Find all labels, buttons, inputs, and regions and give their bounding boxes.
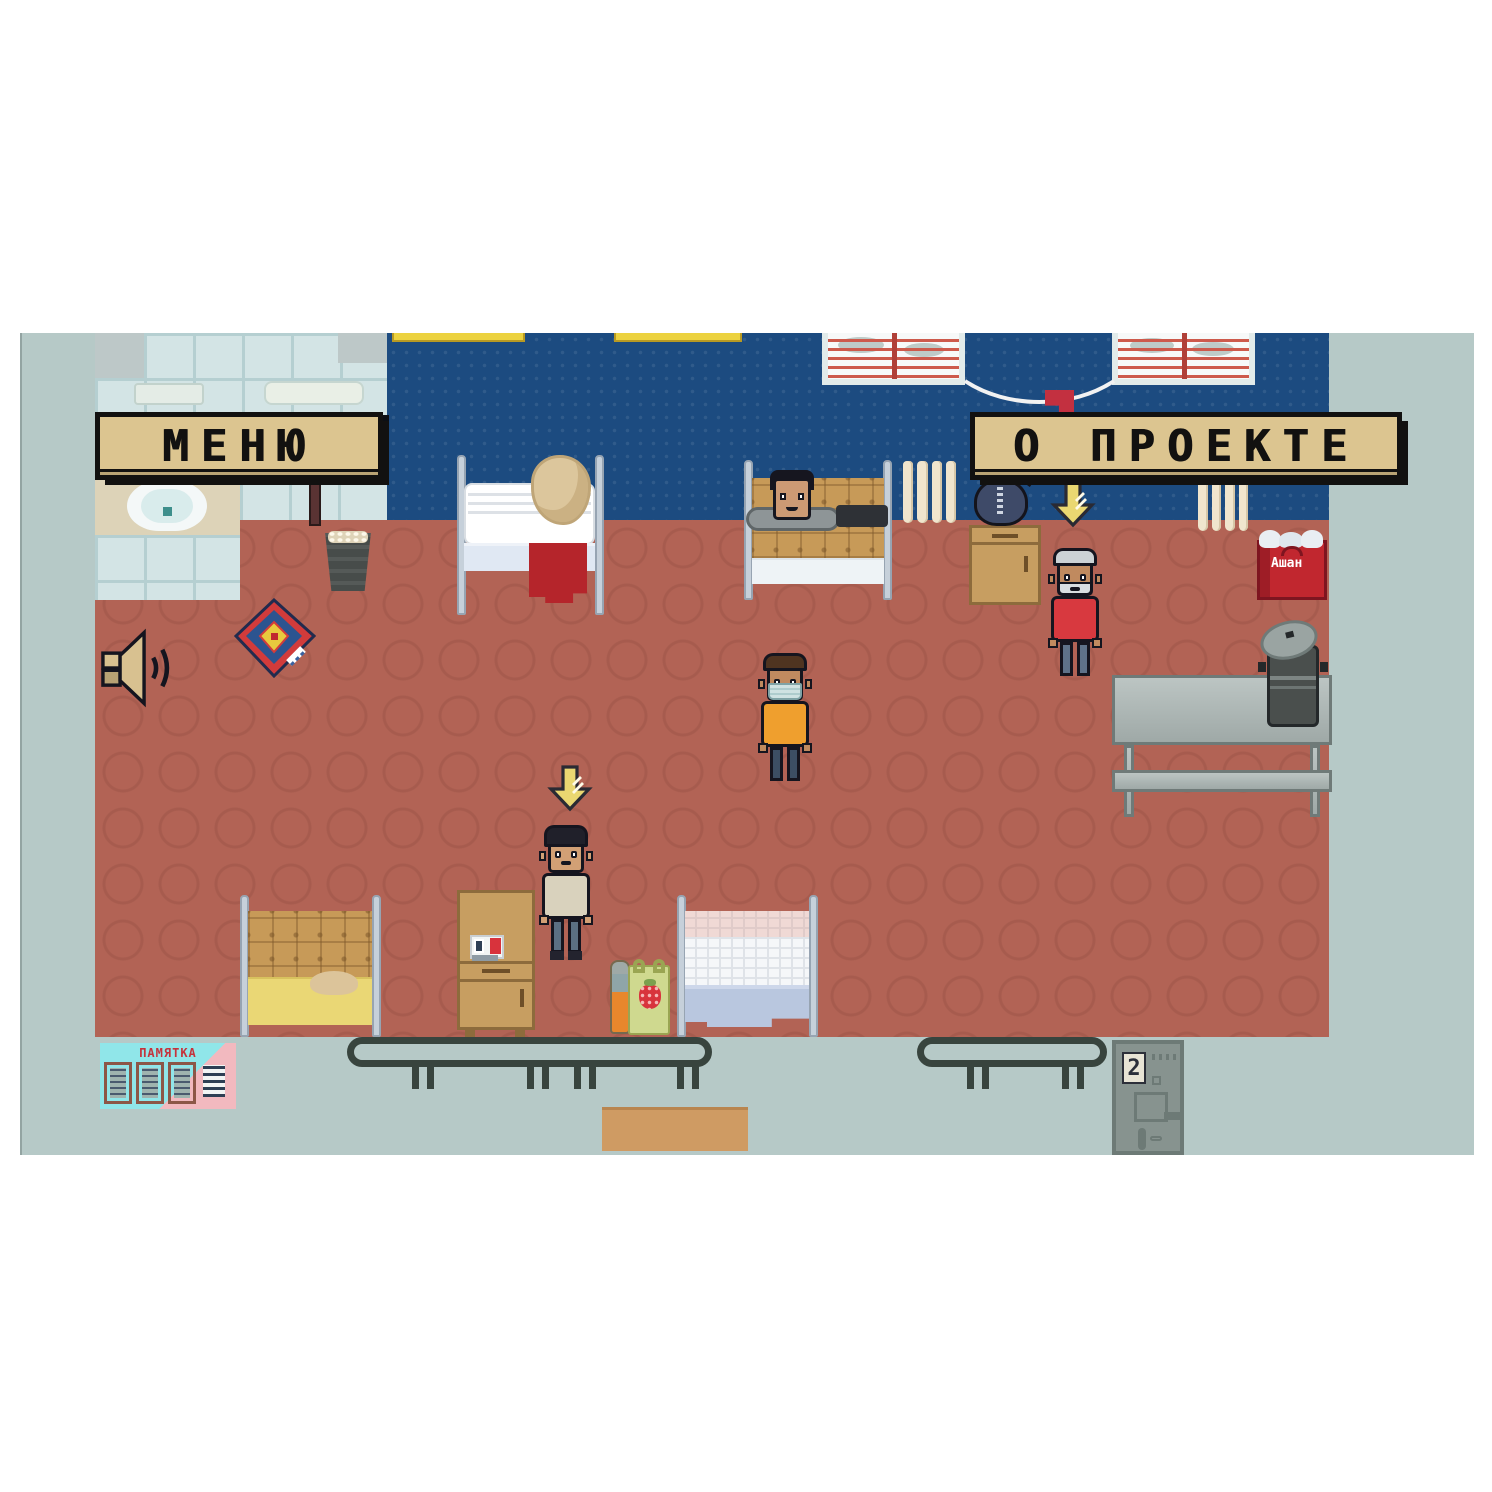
kettle-highlight	[997, 487, 1003, 517]
bag-contents	[1301, 530, 1323, 548]
document-sheet	[104, 1062, 132, 1104]
pot-handle	[1320, 662, 1328, 672]
pipe-stub	[412, 1061, 434, 1089]
picture-detail	[490, 938, 501, 954]
sign-post	[309, 476, 321, 526]
bed-sheet	[752, 558, 884, 584]
leg	[770, 747, 783, 781]
picture-on-cabinet	[470, 935, 504, 959]
door-detail	[1150, 1136, 1162, 1141]
gray-tile	[338, 333, 387, 363]
leg	[1060, 642, 1073, 676]
door-handle	[520, 989, 524, 1007]
bag-contents	[1259, 530, 1281, 548]
wall-trim	[392, 333, 525, 342]
blue-blanket	[685, 985, 809, 1027]
door-vent	[1152, 1054, 1178, 1060]
game-viewport: Ашан МЕНЮ О ПРОЕКТЕ	[20, 333, 1474, 1155]
blind-cord	[892, 333, 897, 379]
drawer-handle	[482, 969, 510, 973]
folded-duvet	[531, 455, 591, 525]
door-handle	[1024, 556, 1028, 572]
pillow	[310, 971, 358, 995]
memo-documents	[104, 1062, 232, 1104]
leg	[568, 919, 581, 953]
gray-hair	[1053, 548, 1097, 566]
eye	[798, 493, 804, 500]
bed-top-left	[457, 455, 604, 615]
pipe-stub	[1062, 1061, 1084, 1089]
bed-post	[372, 895, 381, 1037]
lid-knob	[1285, 631, 1294, 639]
radiator	[902, 461, 957, 523]
radiator	[1197, 475, 1249, 531]
door-peephole	[1152, 1076, 1161, 1085]
door-pipe	[1138, 1128, 1146, 1150]
leg	[787, 747, 800, 781]
bare-bed-mesh	[685, 911, 809, 987]
hand	[583, 915, 593, 925]
ear	[1095, 574, 1102, 584]
mouth	[561, 861, 571, 865]
door-number-plate: 2	[1122, 1052, 1146, 1084]
bag-handle	[653, 959, 665, 973]
down-arrow-icon	[1050, 481, 1096, 529]
grocery-bag	[628, 965, 670, 1035]
bed-bottom-middle	[677, 895, 818, 1037]
pipe-stub	[527, 1061, 549, 1089]
memo-poster-title: ПАМЯТКА	[104, 1046, 232, 1060]
room-door[interactable]: 2	[1112, 1040, 1184, 1155]
doormat	[602, 1107, 748, 1151]
speaker-icon[interactable]	[92, 628, 187, 708]
pot-handle	[1258, 662, 1266, 672]
toilet-cistern	[134, 383, 204, 405]
black-hair	[544, 825, 588, 847]
shoe	[568, 951, 582, 960]
document-sheet	[136, 1062, 164, 1104]
nightstand	[969, 525, 1041, 605]
kettle	[974, 478, 1028, 526]
mesh-tint	[685, 911, 809, 937]
medical-mask	[768, 683, 802, 700]
hand	[1092, 638, 1102, 648]
frown-mouth	[786, 507, 798, 511]
blind-cord	[1182, 333, 1187, 379]
old-man-character[interactable]	[1047, 548, 1103, 684]
face	[773, 478, 811, 520]
ear	[805, 679, 812, 689]
menu-sign-label: МЕНЮ	[162, 421, 316, 472]
drawer-handle	[992, 534, 1018, 538]
bed-post	[883, 460, 892, 600]
mouth	[1070, 587, 1080, 591]
crumpled-paper	[328, 531, 368, 543]
bathroom-wall-tiles	[95, 535, 240, 600]
masked-man-character[interactable]	[757, 653, 813, 789]
eye	[780, 493, 786, 500]
bathroom-sink	[264, 381, 364, 405]
document-sheet	[200, 1062, 228, 1100]
bag-handle	[633, 959, 645, 973]
window-blinds	[822, 333, 965, 385]
leg	[1077, 642, 1090, 676]
wall-trim	[614, 333, 742, 342]
bed-post	[809, 895, 818, 1037]
bag-brand-label: Ашан	[1271, 556, 1319, 571]
sleeping-man-character[interactable]	[770, 470, 814, 528]
eye	[555, 851, 561, 858]
clothesline	[957, 375, 1122, 417]
shopping-bag-auchan: Ашан	[1257, 530, 1327, 600]
hand	[1048, 638, 1058, 648]
hand	[539, 915, 549, 925]
bed-bottom-left	[240, 895, 381, 1037]
gray-tile	[95, 333, 144, 378]
down-arrow-icon	[547, 765, 593, 813]
memo-poster[interactable]: ПАМЯТКА	[100, 1043, 236, 1109]
drawer-line	[460, 961, 532, 964]
brown-hair	[763, 653, 807, 671]
shoe	[550, 951, 564, 960]
folded-rug	[232, 598, 316, 678]
beige-sweater	[542, 873, 590, 919]
pipe-stub	[677, 1061, 699, 1089]
drawer-line	[460, 979, 532, 982]
door-handle	[1164, 1112, 1180, 1120]
pot-band	[1270, 676, 1316, 680]
eye	[1080, 574, 1086, 581]
ear	[1048, 574, 1055, 584]
table-shelf	[1112, 770, 1332, 792]
about-sign-label: О ПРОЕКТЕ	[1013, 421, 1359, 472]
orange-shirt	[761, 701, 809, 747]
leg	[551, 919, 564, 953]
pot-band	[1270, 686, 1316, 689]
bed-top-middle	[744, 460, 892, 600]
ear	[586, 851, 593, 861]
eye	[571, 851, 577, 858]
dark-bag-on-bed	[836, 505, 888, 527]
red-blanket	[529, 543, 587, 603]
picture-detail	[474, 939, 484, 953]
wardrobe-cabinet	[457, 890, 535, 1030]
bed-post	[595, 455, 604, 615]
drawer-line	[972, 542, 1038, 545]
hand	[802, 743, 812, 753]
door-panel	[1134, 1092, 1168, 1122]
ear	[758, 679, 765, 689]
bottle	[610, 960, 630, 1034]
red-sweater	[1051, 596, 1099, 642]
document-sheet	[168, 1062, 196, 1104]
strawberry-print	[639, 985, 661, 1009]
strawberry-leaf	[644, 979, 656, 986]
squat-toilet	[127, 481, 207, 531]
eye	[1064, 574, 1070, 581]
menu-sign[interactable]: МЕНЮ	[95, 412, 383, 480]
window-blinds	[1112, 333, 1255, 385]
player-character[interactable]	[538, 825, 594, 961]
hand	[758, 743, 768, 753]
pipe-stub	[574, 1061, 596, 1089]
ear	[539, 851, 546, 861]
pipe-stub	[967, 1061, 989, 1089]
about-sign[interactable]: О ПРОЕКТЕ	[970, 412, 1402, 480]
